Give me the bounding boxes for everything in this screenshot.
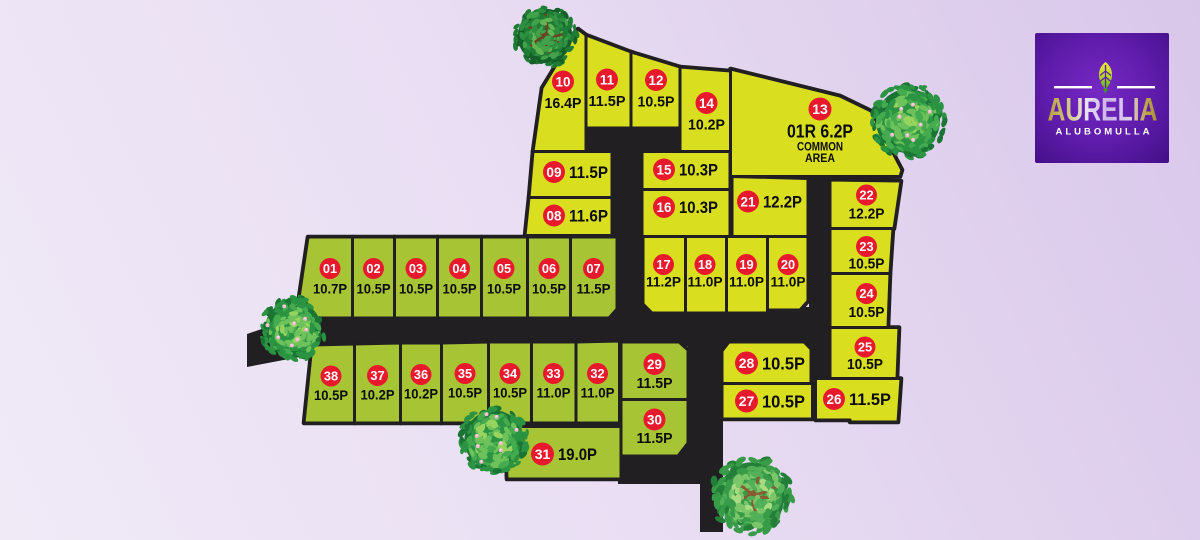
svg-text:10.5P: 10.5P [762, 353, 805, 373]
svg-text:19: 19 [739, 257, 753, 272]
svg-text:10.5P: 10.5P [443, 281, 477, 297]
svg-text:11.0P: 11.0P [537, 385, 571, 401]
svg-text:01R 6.2P: 01R 6.2P [787, 122, 853, 142]
svg-text:10.5P: 10.5P [448, 385, 482, 401]
svg-text:AREA: AREA [805, 151, 835, 165]
svg-text:09: 09 [547, 165, 562, 180]
svg-text:11.2P: 11.2P [646, 275, 681, 291]
svg-text:38: 38 [324, 369, 338, 384]
svg-text:26: 26 [827, 392, 842, 407]
svg-text:30: 30 [647, 412, 662, 427]
svg-text:37: 37 [370, 368, 384, 383]
svg-text:11.6P: 11.6P [569, 207, 608, 225]
svg-text:36: 36 [414, 367, 428, 382]
svg-text:03: 03 [409, 261, 423, 276]
svg-text:11.0P: 11.0P [688, 275, 723, 291]
svg-text:15: 15 [657, 162, 672, 177]
svg-text:02: 02 [366, 261, 380, 276]
svg-text:10.5P: 10.5P [849, 305, 885, 321]
svg-text:10.5P: 10.5P [532, 281, 566, 297]
svg-text:21: 21 [741, 194, 756, 209]
svg-text:10.5P: 10.5P [487, 281, 521, 297]
svg-text:04: 04 [452, 261, 467, 276]
svg-text:10.5P: 10.5P [314, 387, 348, 403]
svg-text:10.5P: 10.5P [493, 385, 527, 401]
svg-text:11.5P: 11.5P [569, 164, 608, 182]
svg-text:01: 01 [323, 261, 337, 276]
svg-text:12: 12 [649, 73, 664, 88]
svg-text:13: 13 [812, 101, 828, 117]
svg-text:33: 33 [546, 366, 560, 381]
svg-text:23: 23 [859, 239, 873, 254]
svg-text:12.2P: 12.2P [849, 206, 885, 222]
svg-text:27: 27 [739, 393, 755, 409]
svg-text:10.7P: 10.7P [313, 281, 347, 297]
svg-text:10.5P: 10.5P [849, 256, 885, 272]
svg-text:22: 22 [859, 188, 873, 203]
svg-text:25: 25 [858, 340, 872, 355]
svg-text:10.3P: 10.3P [679, 161, 718, 179]
svg-text:07: 07 [586, 261, 600, 276]
svg-text:10.2P: 10.2P [404, 386, 438, 402]
svg-text:10.5P: 10.5P [399, 281, 433, 297]
svg-text:10.2P: 10.2P [361, 387, 395, 403]
svg-text:11.5P: 11.5P [577, 281, 611, 297]
svg-text:12.2P: 12.2P [763, 193, 802, 212]
svg-text:11.5P: 11.5P [637, 376, 673, 392]
svg-text:24: 24 [859, 286, 874, 301]
svg-text:11: 11 [600, 72, 615, 87]
svg-text:34: 34 [503, 366, 518, 381]
svg-text:31: 31 [535, 446, 551, 462]
svg-text:11.0P: 11.0P [771, 275, 806, 291]
svg-text:10: 10 [556, 74, 571, 89]
svg-text:19.0P: 19.0P [558, 445, 597, 464]
svg-text:06: 06 [542, 261, 556, 276]
svg-text:08: 08 [547, 208, 562, 223]
svg-text:16.4P: 16.4P [545, 96, 582, 112]
svg-text:11.0P: 11.0P [729, 275, 764, 291]
svg-text:10.5P: 10.5P [357, 281, 391, 297]
svg-text:05: 05 [497, 261, 511, 276]
svg-text:11.5P: 11.5P [589, 94, 626, 110]
svg-text:10.5P: 10.5P [762, 391, 805, 411]
svg-text:16: 16 [657, 200, 672, 215]
svg-text:29: 29 [647, 357, 662, 372]
svg-text:17: 17 [656, 257, 670, 272]
svg-text:10.3P: 10.3P [679, 199, 718, 217]
svg-text:10.2P: 10.2P [688, 118, 725, 134]
svg-text:14: 14 [699, 96, 714, 111]
svg-text:10.5P: 10.5P [847, 357, 883, 373]
svg-text:28: 28 [739, 355, 755, 371]
svg-text:18: 18 [698, 257, 712, 272]
svg-text:11.0P: 11.0P [581, 385, 615, 401]
svg-text:20: 20 [781, 257, 795, 272]
svg-text:35: 35 [458, 366, 472, 381]
svg-text:10.5P: 10.5P [638, 95, 675, 111]
svg-text:AURELIA: AURELIA [1048, 92, 1158, 128]
svg-text:32: 32 [590, 366, 604, 381]
svg-text:11.5P: 11.5P [637, 431, 673, 447]
svg-text:11.5P: 11.5P [849, 390, 891, 409]
